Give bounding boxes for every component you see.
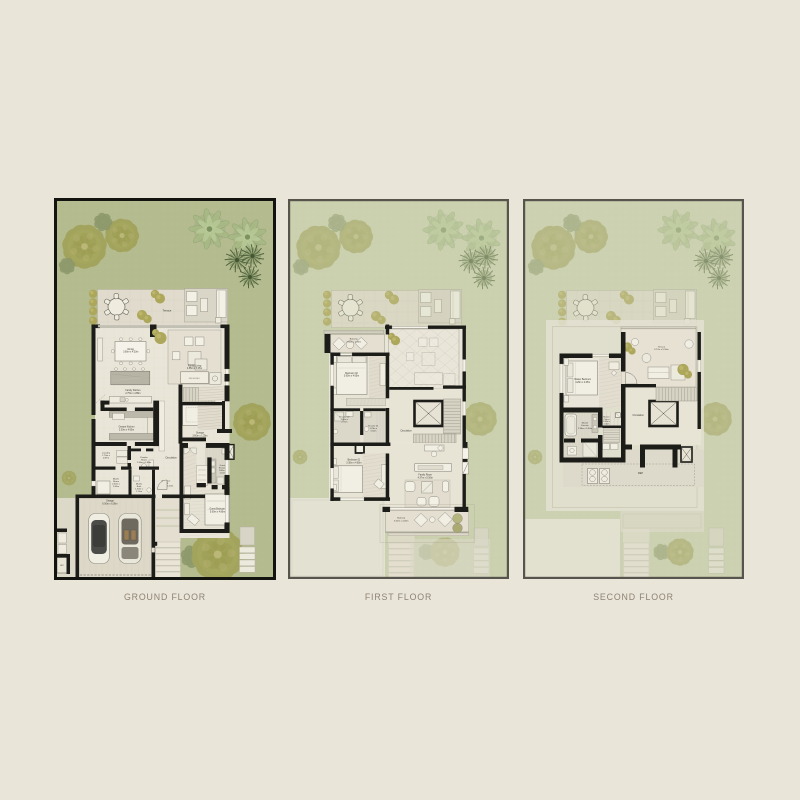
svg-text:Bath: Bath <box>137 485 142 488</box>
svg-text:6.00m x 6.00m: 6.00m x 6.00m <box>102 503 117 505</box>
svg-text:Grease Kitchen: Grease Kitchen <box>119 425 136 428</box>
svg-text:Laundry: Laundry <box>102 452 111 455</box>
svg-text:Master: Master <box>582 422 589 425</box>
svg-text:2.70m: 2.70m <box>341 422 347 424</box>
svg-text:4.55m x 5.05m: 4.55m x 5.05m <box>187 368 202 370</box>
svg-text:Terrace: Terrace <box>658 345 666 348</box>
svg-text:1.10m: 1.10m <box>136 491 142 493</box>
svg-text:3.77m x 5.55m: 3.77m x 5.55m <box>654 349 669 351</box>
svg-text:Garage: Garage <box>106 500 114 503</box>
svg-text:Ensuite 01: Ensuite 01 <box>368 424 379 427</box>
svg-text:MEP: MEP <box>638 472 644 475</box>
svg-text:2.75m x 4.85m: 2.75m x 4.85m <box>125 393 140 395</box>
svg-text:Bedroom 02: Bedroom 02 <box>345 372 358 375</box>
svg-text:MEDIA WALL: MEDIA WALL <box>189 377 201 380</box>
svg-text:Family Room: Family Room <box>418 475 432 477</box>
svg-text:Balcony: Balcony <box>350 338 359 340</box>
svg-text:Circulation: Circulation <box>400 429 412 432</box>
svg-text:Storage: Storage <box>196 432 205 435</box>
svg-text:5.50m x 4.35m: 5.50m x 4.35m <box>394 520 409 522</box>
svg-text:Family Kitchen: Family Kitchen <box>125 389 141 392</box>
svg-text:3.60m x 4.33m: 3.60m x 4.33m <box>123 352 138 354</box>
svg-text:Guest Bedroom: Guest Bedroom <box>209 508 225 511</box>
svg-text:Terrace: Terrace <box>163 309 172 313</box>
svg-text:1.15m: 1.15m <box>220 473 226 475</box>
svg-text:2.60m x 1.85m: 2.60m x 1.85m <box>346 341 361 343</box>
svg-text:4.26m x 4.65m: 4.26m x 4.65m <box>575 382 590 384</box>
svg-text:3.60m x 4.80m: 3.60m x 4.80m <box>210 512 225 514</box>
svg-text:Ensuite: Ensuite <box>581 424 589 427</box>
svg-text:3.30m x 4.65m: 3.30m x 4.65m <box>346 462 361 464</box>
svg-text:1.20m x 1.85m: 1.20m x 1.85m <box>137 462 152 464</box>
svg-text:Ensuite 02: Ensuite 02 <box>339 415 350 418</box>
svg-text:2.05m: 2.05m <box>604 424 610 426</box>
svg-text:3.65m x 4.65m: 3.65m x 4.65m <box>344 376 359 378</box>
svg-text:Dining: Dining <box>127 349 134 351</box>
svg-text:3.60m x 1.25m: 3.60m x 1.25m <box>192 436 207 438</box>
svg-text:2.50m x 4.65m: 2.50m x 4.65m <box>119 429 134 431</box>
svg-text:Circulation: Circulation <box>165 457 177 460</box>
svg-text:Circulation: Circulation <box>633 414 645 417</box>
svg-text:2.96m x 3.30m: 2.96m x 3.30m <box>578 428 592 430</box>
svg-text:4.37m x 5.50m: 4.37m x 5.50m <box>418 477 433 479</box>
svg-text:2.60m: 2.60m <box>113 486 119 488</box>
svg-text:Powder: Powder <box>140 456 148 459</box>
svg-text:0.87m: 0.87m <box>103 458 109 460</box>
svg-text:Master Bedroom: Master Bedroom <box>574 378 591 381</box>
svg-text:3.30m: 3.30m <box>370 431 376 433</box>
svg-text:Family Living: Family Living <box>188 365 202 367</box>
svg-text:Balcony: Balcony <box>397 518 406 520</box>
svg-text:Bedroom 01: Bedroom 01 <box>348 458 361 461</box>
